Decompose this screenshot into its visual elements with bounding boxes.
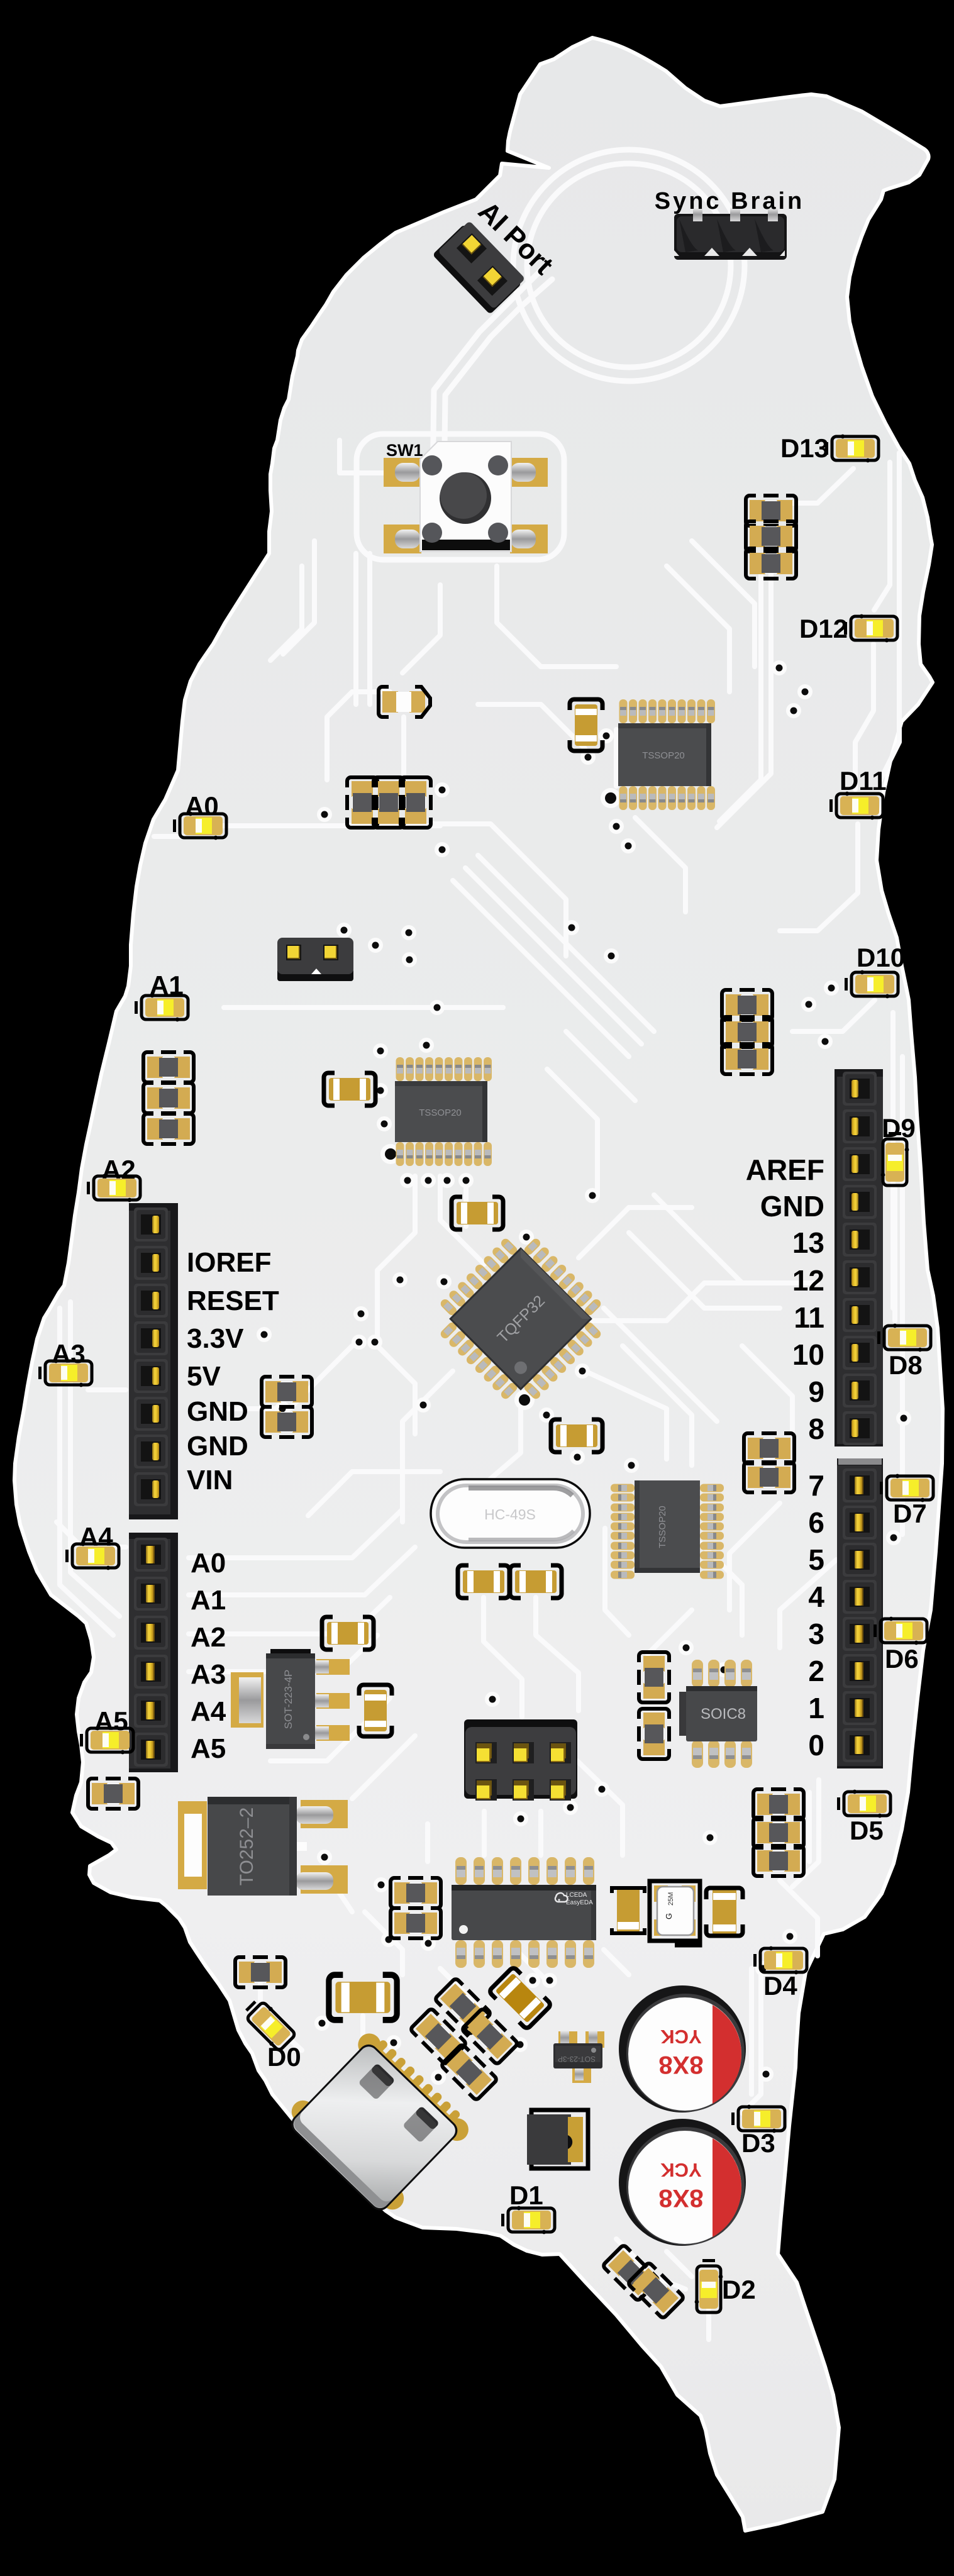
svg-text:8: 8 (808, 1413, 824, 1445)
svg-text:A2: A2 (102, 1155, 136, 1184)
svg-text:4: 4 (808, 1580, 824, 1613)
svg-text:6: 6 (808, 1506, 824, 1539)
svg-text:D1: D1 (509, 2180, 543, 2210)
svg-text:YCK: YCK (660, 2159, 702, 2181)
svg-text:A0: A0 (191, 1548, 226, 1579)
svg-text:3: 3 (808, 1618, 824, 1650)
svg-text:IOREF: IOREF (187, 1247, 271, 1278)
svg-text:TO252–2: TO252–2 (236, 1807, 257, 1886)
svg-text:YCK: YCK (660, 2026, 702, 2048)
svg-text:A4: A4 (79, 1522, 113, 1552)
svg-text:TSSOP20: TSSOP20 (657, 1506, 668, 1548)
svg-text:TSSOP20: TSSOP20 (642, 750, 685, 761)
svg-text:Sync Brain: Sync Brain (655, 188, 805, 214)
svg-text:D2: D2 (722, 2275, 756, 2304)
svg-text:A1: A1 (150, 970, 184, 1000)
svg-text:SOT-23-3P: SOT-23-3P (558, 2055, 596, 2063)
svg-text:3.3V: 3.3V (187, 1323, 244, 1354)
svg-text:SW1: SW1 (386, 441, 423, 460)
svg-text:D11: D11 (840, 766, 887, 796)
svg-text:D10: D10 (857, 943, 905, 972)
svg-text:GND: GND (187, 1431, 248, 1462)
svg-text:8X8: 8X8 (658, 2184, 703, 2212)
svg-text:D12: D12 (799, 614, 848, 643)
svg-text:A4: A4 (191, 1696, 226, 1727)
svg-text:A1: A1 (191, 1585, 226, 1616)
svg-text:A5: A5 (94, 1706, 128, 1736)
svg-text:13: 13 (792, 1226, 824, 1259)
svg-text:2: 2 (808, 1655, 824, 1687)
svg-text:HC-49S: HC-49S (484, 1506, 536, 1523)
svg-text:0: 0 (808, 1729, 824, 1762)
svg-text:D4: D4 (763, 1971, 797, 2001)
svg-text:A2: A2 (191, 1622, 226, 1653)
svg-text:D13: D13 (780, 433, 829, 463)
svg-text:A3: A3 (52, 1339, 86, 1368)
svg-text:RESET: RESET (187, 1285, 279, 1316)
svg-text:11: 11 (794, 1301, 824, 1334)
svg-text:LCEDA: LCEDA (566, 1892, 587, 1899)
svg-text:AREF: AREF (746, 1153, 824, 1186)
svg-text:G: G (664, 1913, 674, 1919)
svg-text:D5: D5 (850, 1816, 884, 1845)
svg-text:7: 7 (808, 1469, 824, 1502)
svg-text:SOIC8: SOIC8 (701, 1706, 746, 1723)
svg-text:10: 10 (792, 1338, 824, 1371)
svg-text:8X8: 8X8 (658, 2051, 703, 2079)
svg-text:A5: A5 (191, 1733, 226, 1764)
svg-text:D0: D0 (267, 2042, 301, 2072)
svg-text:1: 1 (808, 1692, 824, 1724)
svg-text:5V: 5V (187, 1361, 221, 1392)
svg-text:GND: GND (187, 1396, 248, 1427)
svg-text:9: 9 (808, 1375, 824, 1408)
svg-text:GND: GND (760, 1190, 824, 1223)
svg-text:A3: A3 (191, 1659, 226, 1690)
svg-text:SOT-223-4P: SOT-223-4P (282, 1670, 294, 1729)
svg-text:25M: 25M (667, 1892, 675, 1906)
svg-text:D7: D7 (893, 1499, 927, 1528)
svg-text:A0: A0 (185, 791, 219, 821)
svg-text:VIN: VIN (187, 1465, 233, 1496)
svg-text:D8: D8 (889, 1350, 923, 1380)
svg-text:EasyEDA: EasyEDA (566, 1899, 593, 1906)
svg-text:D3: D3 (741, 2128, 775, 2158)
svg-text:TSSOP20: TSSOP20 (419, 1108, 462, 1118)
svg-text:5: 5 (808, 1543, 824, 1576)
svg-text:D6: D6 (885, 1644, 919, 1674)
svg-text:12: 12 (792, 1264, 824, 1297)
